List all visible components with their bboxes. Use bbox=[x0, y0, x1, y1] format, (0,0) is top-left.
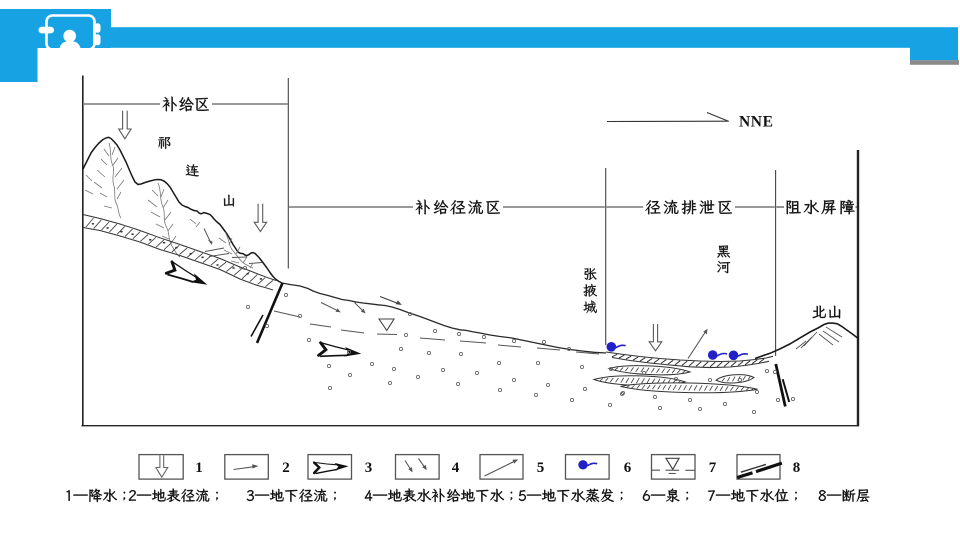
svg-text:6: 6 bbox=[624, 460, 632, 476]
svg-text:7: 7 bbox=[709, 460, 717, 476]
svg-text:8: 8 bbox=[793, 460, 801, 476]
svg-text:2: 2 bbox=[282, 460, 290, 476]
svg-text:NNE: NNE bbox=[739, 114, 774, 131]
svg-text:5: 5 bbox=[537, 460, 545, 476]
svg-text:4: 4 bbox=[452, 460, 460, 476]
svg-text:1: 1 bbox=[195, 460, 203, 476]
svg-text:3: 3 bbox=[365, 460, 373, 476]
